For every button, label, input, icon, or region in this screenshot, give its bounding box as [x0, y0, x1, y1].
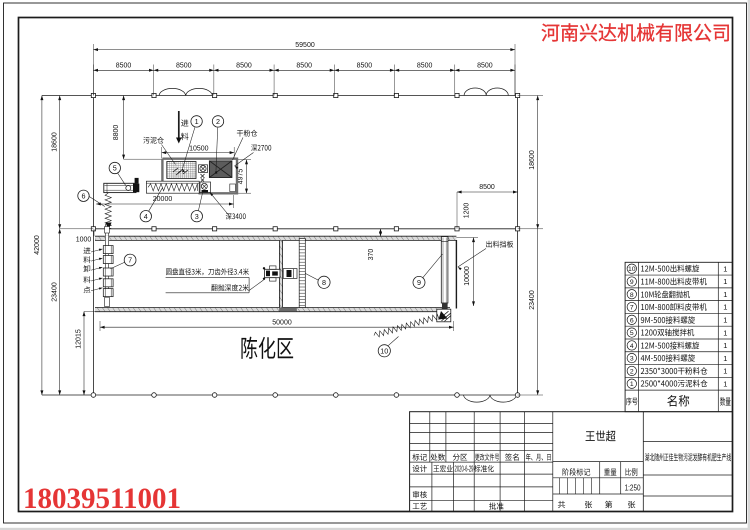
svg-text:1200双轴搅拌机: 1200双轴搅拌机 [641, 327, 696, 339]
svg-text:8500: 8500 [477, 63, 493, 70]
svg-text:18600: 18600 [529, 150, 536, 170]
svg-text:张: 张 [584, 500, 592, 511]
svg-text:2350*3000干粉料仓: 2350*3000干粉料仓 [641, 365, 708, 377]
svg-text:1: 1 [723, 341, 727, 350]
svg-text:工艺: 工艺 [412, 501, 427, 512]
svg-text:9: 9 [417, 278, 421, 287]
svg-text:370: 370 [368, 249, 375, 261]
svg-text:张: 张 [628, 500, 636, 511]
svg-text:4M-500接料螺旋: 4M-500接料螺旋 [641, 352, 696, 364]
svg-text:1: 1 [723, 328, 727, 337]
svg-text:10M-800卸料皮带机: 10M-800卸料皮带机 [641, 301, 708, 313]
svg-text:共: 共 [558, 500, 566, 511]
svg-text:王世超: 王世超 [585, 428, 616, 445]
svg-text:12M-500接料螺旋: 12M-500接料螺旋 [641, 339, 700, 351]
svg-text:10: 10 [380, 346, 388, 355]
svg-text:圆盘直径3米，刀齿外径3.4米: 圆盘直径3米，刀齿外径3.4米 [166, 267, 250, 278]
svg-text:10M轮盘翻抛机: 10M轮盘翻抛机 [641, 288, 691, 300]
svg-text:4975: 4975 [237, 169, 244, 185]
svg-text:23400: 23400 [529, 290, 536, 310]
svg-text:批准: 批准 [489, 501, 504, 512]
svg-text:12015: 12015 [75, 329, 82, 349]
svg-text:8: 8 [322, 278, 326, 287]
svg-text:8500: 8500 [296, 63, 312, 70]
svg-text:8500: 8500 [236, 63, 252, 70]
svg-text:河南兴达机械有限公司: 河南兴达机械有限公司 [541, 17, 731, 46]
svg-text:干粉仓: 干粉仓 [237, 128, 258, 139]
svg-text:3: 3 [630, 356, 634, 363]
svg-text:8500: 8500 [417, 63, 433, 70]
svg-text:18600: 18600 [52, 132, 59, 152]
svg-text:5: 5 [630, 330, 634, 337]
svg-text:出料挡板: 出料挡板 [486, 239, 514, 250]
svg-text:6: 6 [82, 191, 86, 200]
svg-text:23400: 23400 [52, 282, 59, 302]
svg-text:王宏业: 王宏业 [433, 464, 453, 475]
svg-text:1: 1 [195, 117, 199, 126]
svg-text:料: 料 [181, 132, 189, 143]
svg-text:1: 1 [723, 367, 727, 376]
svg-text:名称: 名称 [667, 391, 690, 410]
svg-text:1000: 1000 [76, 237, 92, 244]
svg-text:1: 1 [723, 277, 727, 286]
svg-text:进: 进 [181, 118, 189, 129]
svg-text:处数: 处数 [430, 452, 445, 463]
svg-text:7: 7 [630, 305, 634, 312]
svg-text:2: 2 [630, 368, 634, 375]
svg-text:阶段标记: 阶段标记 [562, 467, 591, 478]
svg-text:2020-6-29: 2020-6-29 [455, 465, 474, 474]
svg-text:第: 第 [605, 500, 613, 511]
svg-text:11M-800出料皮带机: 11M-800出料皮带机 [641, 275, 708, 287]
svg-text:1: 1 [723, 354, 727, 363]
svg-text:10500: 10500 [189, 145, 209, 152]
svg-text:卸: 卸 [83, 264, 91, 275]
svg-text:8800: 8800 [113, 125, 120, 141]
svg-text:42000: 42000 [34, 235, 41, 255]
svg-text:2500*4000污泥料仓: 2500*4000污泥料仓 [641, 378, 708, 390]
svg-text:标记: 标记 [412, 452, 427, 463]
svg-text:1: 1 [723, 303, 727, 312]
svg-text:4: 4 [630, 343, 634, 350]
svg-text:陈化区: 陈化区 [240, 329, 294, 364]
svg-text:深3400: 深3400 [226, 211, 247, 222]
svg-text:分区: 分区 [453, 452, 468, 463]
svg-text:9M-500接料螺旋: 9M-500接料螺旋 [641, 314, 696, 326]
svg-text:年、月、日: 年、月、日 [526, 452, 552, 463]
svg-text:7: 7 [128, 256, 132, 265]
svg-text:8500: 8500 [479, 184, 495, 191]
svg-text:8500: 8500 [176, 63, 192, 70]
svg-text:设计: 设计 [412, 464, 427, 475]
svg-text:审核: 审核 [412, 489, 427, 500]
svg-text:8: 8 [630, 292, 634, 299]
svg-text:12M-500出料螺旋: 12M-500出料螺旋 [641, 263, 700, 275]
svg-text:污泥仓: 污泥仓 [143, 135, 164, 146]
svg-text:10: 10 [628, 266, 636, 273]
svg-text:标准化: 标准化 [474, 464, 494, 475]
svg-text:1:250: 1:250 [625, 483, 641, 492]
svg-text:1: 1 [723, 290, 727, 299]
svg-text:1: 1 [723, 379, 727, 388]
svg-text:湖北随州正佳生物污泥发酵有机肥生产线: 湖北随州正佳生物污泥发酵有机肥生产线 [645, 450, 732, 463]
svg-text:1200: 1200 [464, 203, 471, 219]
svg-text:数量: 数量 [720, 394, 731, 408]
svg-text:59500: 59500 [295, 42, 315, 49]
svg-text:1: 1 [723, 264, 727, 273]
svg-text:5: 5 [113, 164, 117, 173]
svg-text:翻抛深度2米: 翻抛深度2米 [211, 282, 249, 293]
svg-text:签名: 签名 [505, 452, 520, 463]
svg-text:10000: 10000 [464, 266, 471, 286]
svg-text:8500: 8500 [116, 63, 132, 70]
svg-text:序号: 序号 [626, 396, 638, 408]
svg-text:重量: 重量 [604, 467, 617, 478]
svg-text:8500: 8500 [357, 63, 373, 70]
svg-text:1: 1 [630, 381, 634, 388]
svg-text:4: 4 [144, 212, 148, 221]
svg-text:3: 3 [195, 212, 199, 221]
svg-text:50000: 50000 [272, 320, 292, 327]
svg-text:深2700: 深2700 [251, 143, 272, 154]
svg-text:9: 9 [630, 279, 634, 286]
svg-text:点: 点 [83, 284, 91, 295]
svg-text:18039511001: 18039511001 [23, 483, 181, 515]
svg-text:2: 2 [216, 117, 220, 126]
svg-text:6: 6 [630, 317, 634, 324]
svg-text:1: 1 [723, 316, 727, 325]
svg-text:比例: 比例 [625, 467, 638, 478]
svg-text:更改文件号: 更改文件号 [475, 452, 500, 463]
